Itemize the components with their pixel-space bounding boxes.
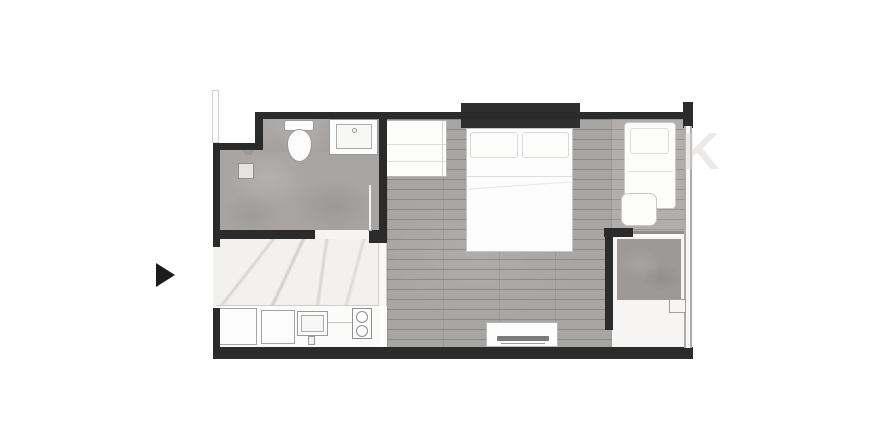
bathroom-door-leaf (368, 184, 372, 231)
wall-utility-top (604, 228, 633, 237)
blanket-line (467, 176, 572, 177)
tv (497, 336, 549, 341)
kitchen-sink-basin (301, 315, 324, 332)
wall-bathroom-bottom (216, 230, 315, 239)
faucet-icon (352, 128, 357, 133)
kitchen-sink (297, 311, 328, 336)
pillow (522, 132, 569, 158)
bathroom-door-opening (315, 230, 369, 239)
two-burner-stove (352, 308, 372, 339)
wall-bath-jog-horizontal (213, 143, 263, 150)
vanity-sink (329, 119, 378, 155)
pillow (470, 132, 518, 158)
ottoman-table (621, 193, 657, 226)
burner-icon (356, 325, 368, 337)
double-bed (466, 128, 573, 252)
wall-top (255, 112, 691, 119)
wall-balcony-utility-divider (633, 231, 686, 234)
wall-bathroom-door-corner (369, 230, 387, 243)
wall-bottom (213, 347, 693, 359)
burner-icon (356, 311, 368, 323)
blanket-fold (468, 181, 572, 189)
utility-step-notch (669, 299, 686, 313)
ac-pad (617, 239, 681, 300)
wall-bathroom-right (379, 119, 387, 237)
floor-drain (238, 163, 254, 179)
tv-console (486, 322, 558, 347)
tv-stand-line (501, 343, 545, 344)
kitchen-hall-floor (213, 239, 380, 307)
counter-edge-line (328, 322, 353, 323)
floor-plan-canvas: K (0, 0, 890, 440)
hall-room-opening (378, 243, 387, 306)
wall-utility-left (605, 237, 613, 330)
duct-shaft (212, 90, 219, 143)
fridge-cabinet (218, 308, 257, 345)
wardrobe (386, 120, 447, 177)
base-cabinet (261, 310, 295, 344)
kitchen-faucet (308, 336, 315, 345)
daybed-cushion (630, 128, 669, 154)
entrance-arrow-icon (156, 263, 175, 287)
watermark-letter: K (682, 126, 716, 178)
